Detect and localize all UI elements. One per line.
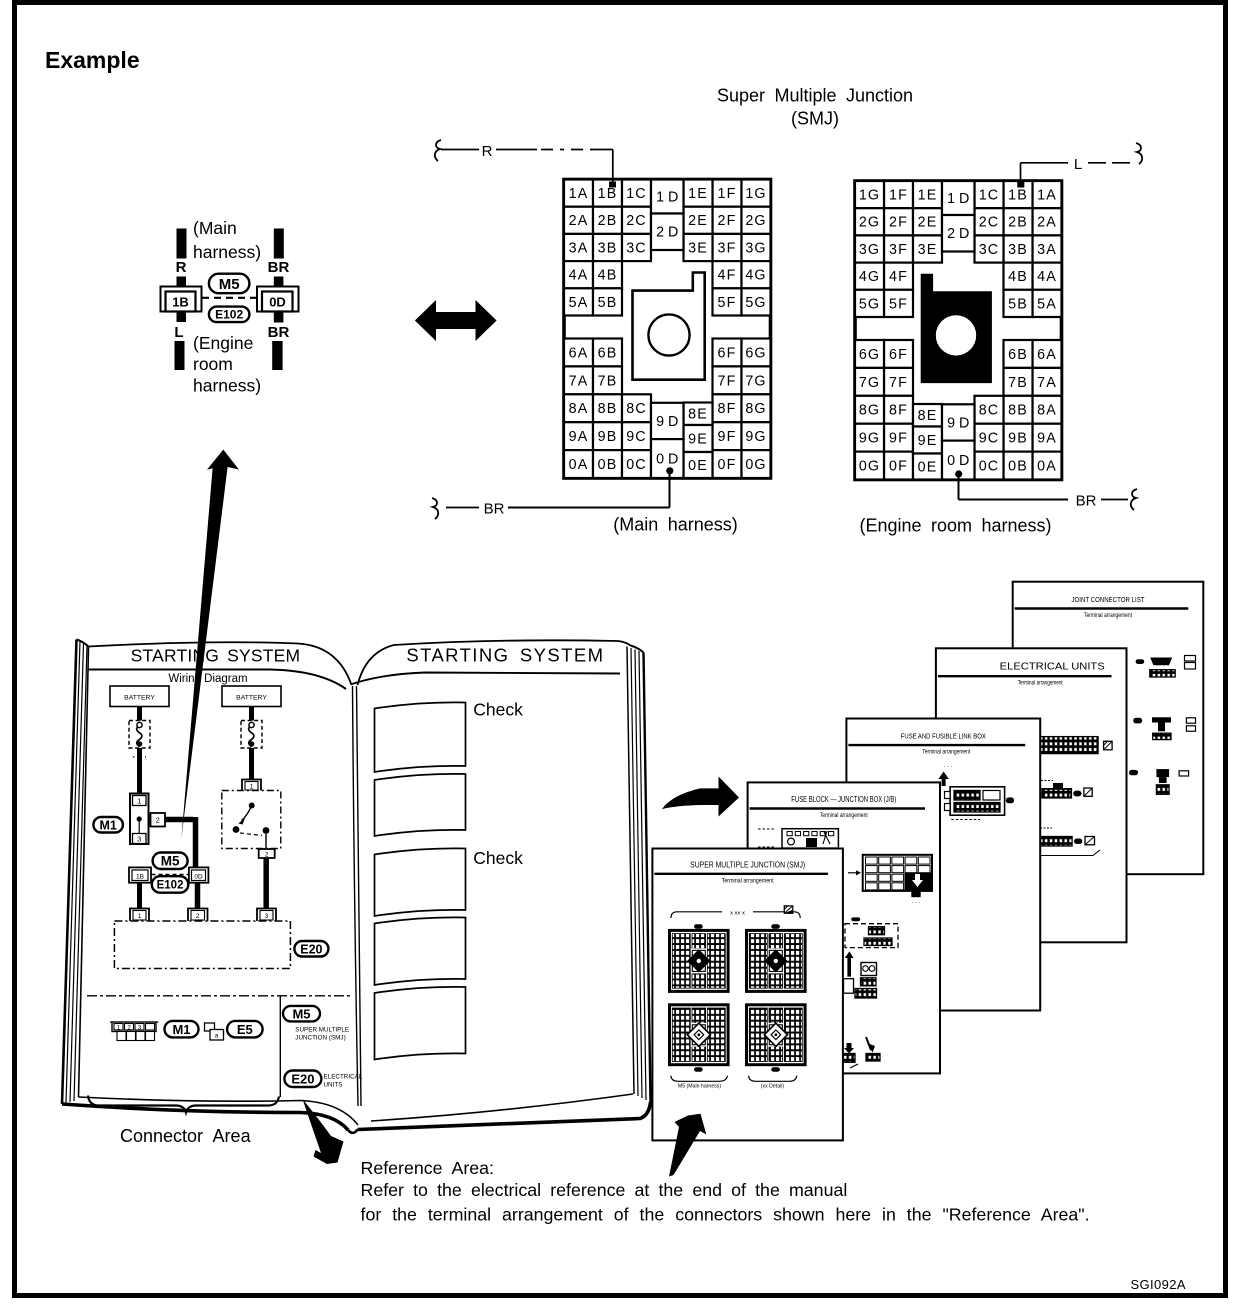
svg-text:4F: 4F: [889, 269, 908, 285]
svg-text:7B: 7B: [598, 373, 618, 389]
svg-text:2E: 2E: [918, 215, 938, 231]
svg-text:9 D: 9 D: [947, 415, 969, 431]
svg-text:0B: 0B: [598, 457, 618, 473]
svg-text:JOINT CONNECTOR LIST: JOINT CONNECTOR LIST: [1072, 597, 1146, 604]
svg-text:2B: 2B: [1008, 215, 1028, 231]
svg-text:2E: 2E: [688, 213, 708, 229]
svg-text:2B: 2B: [598, 213, 618, 229]
svg-text:0B: 0B: [1008, 458, 1028, 474]
svg-text:1A: 1A: [569, 186, 589, 202]
svg-text:Example: Example: [45, 47, 140, 73]
svg-text:2C: 2C: [626, 213, 646, 229]
svg-text:1B: 1B: [136, 873, 144, 880]
svg-text:FUSE AND FUSIBLE LINK BOX: FUSE AND FUSIBLE LINK BOX: [901, 732, 986, 741]
svg-text:0G: 0G: [859, 458, 880, 474]
svg-text:0 D: 0 D: [656, 451, 678, 467]
svg-text:harness): harness): [193, 242, 261, 262]
svg-text:1E: 1E: [918, 188, 938, 204]
svg-text:3B: 3B: [1008, 242, 1028, 258]
svg-text:2C: 2C: [979, 215, 999, 231]
svg-text:2F: 2F: [718, 213, 737, 229]
svg-text:1C: 1C: [979, 188, 999, 204]
svg-text:Refer to the electrical refere: Refer to the electrical reference at the…: [361, 1180, 848, 1200]
svg-text:E20: E20: [291, 1071, 314, 1086]
svg-text:E102: E102: [215, 308, 243, 322]
svg-text:9B: 9B: [598, 429, 618, 445]
svg-text:3A: 3A: [569, 240, 589, 256]
svg-text:Terminal arrangement: Terminal arrangement: [1084, 613, 1132, 619]
svg-text:9A: 9A: [1037, 431, 1057, 447]
svg-text:6F: 6F: [718, 345, 737, 361]
svg-text:9G: 9G: [745, 429, 766, 445]
svg-text:E102: E102: [157, 880, 184, 892]
svg-text:3G: 3G: [745, 240, 766, 256]
svg-text:Terminal arrangement: Terminal arrangement: [922, 750, 970, 756]
svg-text:2 D: 2 D: [947, 226, 969, 242]
svg-text:8F: 8F: [718, 401, 737, 417]
svg-text:9E: 9E: [688, 431, 708, 447]
svg-text:STARTING SYSTEM: STARTING SYSTEM: [131, 646, 301, 666]
svg-text:1F: 1F: [889, 188, 908, 204]
svg-text:BR: BR: [268, 259, 290, 276]
svg-text:3C: 3C: [979, 242, 999, 258]
svg-text:1: 1: [138, 913, 142, 920]
svg-text:3: 3: [265, 913, 269, 920]
svg-text:Super Multiple Junction: Super Multiple Junction: [717, 86, 913, 106]
svg-text:1G: 1G: [745, 186, 766, 202]
svg-text:6G: 6G: [745, 345, 766, 361]
svg-text:L: L: [174, 324, 183, 341]
svg-text:R: R: [482, 143, 493, 160]
svg-text:0E: 0E: [688, 458, 708, 474]
svg-text:6A: 6A: [569, 345, 589, 361]
svg-text:ELECTRICAL: ELECTRICAL: [324, 1074, 363, 1081]
svg-text:FUSE BLOCK — JUNCTION BOX (J/B: FUSE BLOCK — JUNCTION BOX (J/B): [791, 795, 896, 804]
svg-text:Terminal arrangement: Terminal arrangement: [722, 878, 774, 884]
svg-text:1F: 1F: [718, 186, 737, 202]
svg-text:9C: 9C: [626, 429, 646, 445]
svg-text:8E: 8E: [688, 407, 708, 423]
svg-text:harness): harness): [193, 376, 261, 396]
svg-text:3F: 3F: [889, 242, 908, 258]
svg-text:M5: M5: [292, 1006, 310, 1021]
svg-text:BR: BR: [1076, 493, 1097, 510]
svg-text:Terminal arrangement: Terminal arrangement: [820, 813, 868, 819]
svg-text:7A: 7A: [1037, 375, 1057, 391]
svg-text:2A: 2A: [1037, 215, 1057, 231]
svg-text:SUPER MULTIPLE JUNCTION (SMJ): SUPER MULTIPLE JUNCTION (SMJ): [690, 860, 805, 869]
svg-text:3B: 3B: [598, 240, 618, 256]
svg-text:3A: 3A: [1037, 242, 1057, 258]
svg-text:2: 2: [156, 816, 160, 825]
svg-text:2: 2: [265, 851, 269, 858]
svg-text:(Engine room harness): (Engine room harness): [859, 516, 1051, 536]
svg-text:7A: 7A: [569, 373, 589, 389]
svg-text:5B: 5B: [1008, 296, 1028, 312]
svg-text:4G: 4G: [859, 269, 880, 285]
svg-text:9E: 9E: [918, 433, 938, 449]
svg-text:4A: 4A: [569, 268, 589, 284]
svg-text:0C: 0C: [626, 457, 646, 473]
svg-text:(Main harness): (Main harness): [613, 515, 738, 535]
svg-text:2: 2: [196, 913, 200, 920]
svg-text:9 D: 9 D: [656, 414, 678, 430]
svg-text:2F: 2F: [889, 215, 908, 231]
svg-text:BR: BR: [268, 324, 290, 341]
svg-text:8F: 8F: [889, 403, 908, 419]
svg-text:1B: 1B: [172, 295, 189, 310]
svg-text:5G: 5G: [745, 295, 766, 311]
svg-text:1B: 1B: [598, 186, 618, 202]
svg-text:9F: 9F: [889, 431, 908, 447]
svg-text:4B: 4B: [598, 268, 618, 284]
svg-text:1 D: 1 D: [947, 191, 969, 207]
svg-text:M1: M1: [172, 1022, 190, 1037]
svg-text:BATTERY: BATTERY: [124, 695, 155, 702]
svg-text:UNITS: UNITS: [324, 1082, 343, 1089]
svg-text:0A: 0A: [1037, 458, 1057, 474]
svg-text:7B: 7B: [1008, 375, 1028, 391]
svg-text:M5 (Main harness): M5 (Main harness): [678, 1084, 722, 1090]
svg-text:8B: 8B: [598, 401, 618, 417]
svg-text:8G: 8G: [745, 401, 766, 417]
svg-text:BATTERY: BATTERY: [236, 695, 267, 702]
svg-text:M5: M5: [219, 276, 240, 293]
svg-text:L: L: [1074, 156, 1082, 173]
svg-text:SGI092A: SGI092A: [1130, 1277, 1186, 1292]
svg-text:E5: E5: [237, 1022, 253, 1037]
svg-text:1G: 1G: [859, 188, 880, 204]
svg-text:0F: 0F: [718, 457, 737, 473]
svg-text:0G: 0G: [745, 457, 766, 473]
svg-text:3E: 3E: [918, 242, 938, 258]
svg-text:x xx x: x xx x: [730, 911, 745, 917]
svg-text:0D: 0D: [194, 873, 203, 880]
svg-text:6B: 6B: [598, 345, 618, 361]
svg-text:6F: 6F: [889, 347, 908, 363]
svg-text:5B: 5B: [598, 295, 618, 311]
svg-text:M5: M5: [161, 854, 180, 869]
svg-text:1C: 1C: [626, 186, 646, 202]
svg-text:3C: 3C: [626, 240, 646, 256]
svg-text:0 D: 0 D: [947, 453, 969, 469]
svg-text:0A: 0A: [569, 457, 589, 473]
svg-text:Connector Area: Connector Area: [120, 1126, 252, 1146]
svg-text:7F: 7F: [889, 375, 908, 391]
svg-text:(xx Detail): (xx Detail): [761, 1084, 785, 1090]
svg-text:3F: 3F: [718, 240, 737, 256]
svg-text:6G: 6G: [859, 347, 880, 363]
svg-text:STARTING SYSTEM: STARTING SYSTEM: [406, 645, 604, 666]
svg-text:8C: 8C: [979, 403, 999, 419]
svg-text:9G: 9G: [859, 431, 880, 447]
svg-text:Terminal arrangement: Terminal arrangement: [1018, 681, 1063, 687]
svg-text:for the terminal arrangement o: for the terminal arrangement of the conn…: [361, 1205, 1090, 1225]
svg-text:3: 3: [137, 835, 141, 844]
svg-text:2G: 2G: [859, 215, 880, 231]
svg-text:Check: Check: [473, 700, 523, 720]
svg-text:1: 1: [137, 797, 141, 806]
svg-text:Wiring Diagram: Wiring Diagram: [168, 673, 247, 685]
svg-text:SUPER MULTIPLE: SUPER MULTIPLE: [295, 1027, 349, 1034]
svg-text:Check: Check: [473, 848, 523, 868]
svg-text:4A: 4A: [1037, 269, 1057, 285]
svg-text:4F: 4F: [718, 268, 737, 284]
svg-text:2A: 2A: [569, 213, 589, 229]
svg-text:8A: 8A: [1037, 403, 1057, 419]
svg-text:9F: 9F: [718, 429, 737, 445]
svg-text:7F: 7F: [718, 373, 737, 389]
svg-text:E20: E20: [300, 942, 322, 956]
svg-text:5G: 5G: [859, 296, 880, 312]
svg-text:M1: M1: [99, 818, 116, 832]
svg-text:4B: 4B: [1008, 269, 1028, 285]
svg-text:9A: 9A: [569, 429, 589, 445]
svg-text:a: a: [215, 1033, 219, 1040]
svg-text:7G: 7G: [859, 375, 880, 391]
svg-text:R: R: [176, 259, 187, 276]
svg-text:8B: 8B: [1008, 403, 1028, 419]
svg-text:8G: 8G: [859, 403, 880, 419]
svg-text:8C: 8C: [626, 401, 646, 417]
svg-text:2 D: 2 D: [656, 225, 678, 241]
svg-text:5A: 5A: [1037, 296, 1057, 312]
svg-text:1A: 1A: [1037, 188, 1057, 204]
svg-text:0E: 0E: [918, 459, 938, 475]
svg-text:Reference Area:: Reference Area:: [361, 1158, 495, 1178]
svg-text:9C: 9C: [979, 431, 999, 447]
svg-text:9B: 9B: [1008, 431, 1028, 447]
svg-text:(SMJ): (SMJ): [791, 109, 839, 129]
svg-text:1: 1: [250, 783, 254, 790]
svg-text:BR: BR: [484, 501, 505, 518]
svg-text:1B: 1B: [1008, 188, 1028, 204]
svg-text:3G: 3G: [859, 242, 880, 258]
svg-text:1E: 1E: [688, 186, 708, 202]
svg-text:1 D: 1 D: [656, 189, 678, 205]
svg-text:5F: 5F: [718, 295, 737, 311]
svg-text:8E: 8E: [918, 408, 938, 424]
svg-text:(Main: (Main: [193, 218, 237, 238]
svg-text:0C: 0C: [979, 458, 999, 474]
svg-text:(Engine: (Engine: [193, 333, 253, 353]
svg-text:4G: 4G: [745, 268, 766, 284]
svg-text:6B: 6B: [1008, 347, 1028, 363]
svg-text:3E: 3E: [688, 240, 708, 256]
svg-text:0D: 0D: [269, 295, 286, 310]
svg-text:ELECTRICAL UNITS: ELECTRICAL UNITS: [1000, 661, 1105, 673]
svg-text:room: room: [193, 354, 233, 374]
svg-text:8A: 8A: [569, 401, 589, 417]
svg-text:6A: 6A: [1037, 347, 1057, 363]
svg-text:7G: 7G: [745, 373, 766, 389]
svg-text:JUNCTION (SMJ): JUNCTION (SMJ): [295, 1035, 345, 1042]
svg-text:0F: 0F: [889, 458, 908, 474]
svg-text:2G: 2G: [745, 213, 766, 229]
svg-text:5A: 5A: [569, 295, 589, 311]
svg-text:. . .: . . .: [944, 763, 953, 769]
svg-text:5F: 5F: [889, 296, 908, 312]
svg-text:. . .: . . .: [912, 899, 921, 905]
